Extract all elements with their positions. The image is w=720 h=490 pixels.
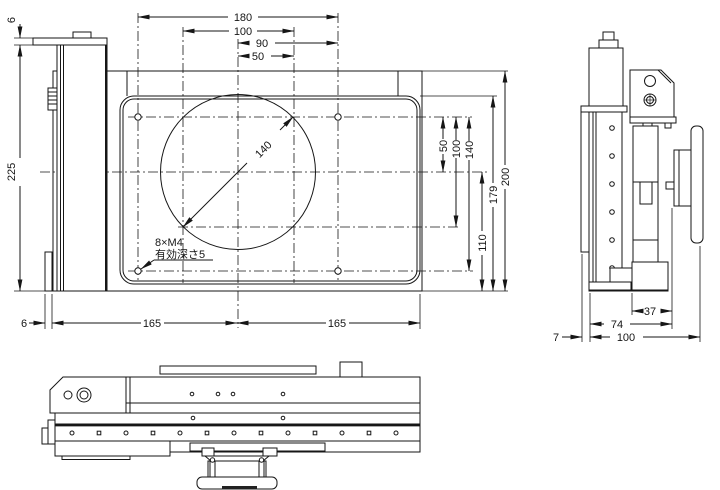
dim-6-left: 6: [6, 17, 34, 45]
dim-label-200: 200: [500, 168, 512, 186]
front-view: [42, 362, 420, 490]
dim-label-7: 7: [553, 332, 559, 344]
dim-200: 200: [500, 71, 512, 291]
dim-label-74: 74: [611, 319, 623, 331]
thread-note-line1: 8×M4: [155, 237, 183, 249]
dim-179: 179: [488, 96, 500, 291]
x-actuator-block: [48, 45, 107, 291]
dim-74: 74: [590, 319, 672, 331]
dim-label-110: 110: [477, 234, 489, 252]
front-knob-assembly: [197, 456, 277, 490]
front-mid-band: [55, 413, 420, 424]
dim-37: 37: [632, 306, 672, 318]
dim-label-165-right: 165: [328, 318, 346, 330]
dim-140-right: 140: [464, 117, 476, 271]
sensor-bar: [33, 32, 107, 45]
dim-label-179: 179: [488, 186, 500, 204]
dim-50-right: 50: [438, 117, 450, 172]
dim-90: 90: [238, 38, 338, 50]
dim-100-top: 100: [183, 26, 294, 38]
bottom-extension-lines: [45, 294, 420, 329]
dim-165-left: 165: [52, 318, 237, 330]
front-table-bar: [160, 366, 316, 374]
side-handwheel: [666, 126, 703, 243]
dim-label-180: 180: [234, 12, 252, 24]
dim-label-100-side: 100: [617, 332, 635, 344]
dim-225: 225: [6, 45, 46, 291]
dim-100-side: 100: [590, 332, 700, 344]
dim-label-6-left: 6: [6, 17, 18, 23]
dim-7: 7: [553, 332, 582, 344]
side-view: 37 74 100 7: [553, 32, 703, 344]
stage-dimension-drawing: 180 100 90 50 6 225: [0, 0, 720, 490]
front-upper-band: [126, 377, 420, 413]
dim-label-37: 37: [644, 306, 656, 318]
dim-165-right: 165: [237, 318, 420, 330]
dim-50-top: 50: [238, 51, 294, 63]
dim-label-6-bottom: 6: [21, 318, 27, 330]
side-bracket: [630, 70, 676, 130]
front-bracket: [50, 377, 126, 413]
dim-180: 180: [138, 12, 338, 24]
top-view: 180 100 90 50 6 225: [6, 12, 512, 330]
side-motor: [589, 32, 623, 106]
dim-label-50-top: 50: [252, 51, 264, 63]
dim-label-140-right: 140: [464, 141, 476, 159]
dim-label-90: 90: [256, 38, 268, 50]
dim-label-100-right: 100: [451, 140, 463, 158]
dim-label-225: 225: [6, 163, 18, 181]
dim-label-100-top: 100: [234, 26, 252, 38]
dim-label-50-right: 50: [438, 140, 450, 152]
front-rail: [42, 420, 420, 444]
right-extension-lines: [420, 71, 508, 291]
bracket-screw: [644, 94, 656, 106]
dim-label-165-left: 165: [143, 318, 161, 330]
thread-note-line2: 有効深さ5: [155, 247, 205, 261]
technical-drawing-page: 180 100 90 50 6 225: [0, 0, 720, 490]
adjust-knob: [48, 88, 57, 110]
side-main-plate: [581, 106, 631, 291]
dim-6-bottom: 6: [21, 318, 45, 330]
